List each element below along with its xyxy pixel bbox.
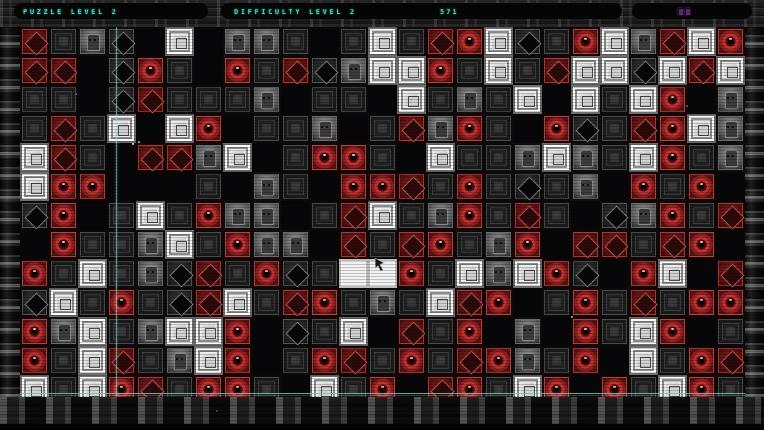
tile-dark-ornate-tile-r4c9[interactable]	[281, 143, 310, 172]
tile-silver-frame-tile-r1c20[interactable]	[600, 56, 629, 85]
tile-silver-frame-tile-r1c13[interactable]	[397, 56, 426, 85]
tile-dark-ornate-tile-r11c9[interactable]	[281, 346, 310, 375]
tile-red-eye-tile-r8c0[interactable]	[20, 259, 49, 288]
tile-dark-ornate-tile-r5c16[interactable]	[484, 172, 513, 201]
dust-speck	[138, 141, 140, 143]
tile-red-eye-tile-r5c1[interactable]	[49, 172, 78, 201]
tile-red-diamond-tile-r11c24[interactable]	[716, 346, 745, 375]
tile-dark-ornate-tile-r2c0[interactable]	[20, 85, 49, 114]
pointer-cursor	[374, 258, 386, 272]
tile-gray-face-tile-r3c10[interactable]	[310, 114, 339, 143]
dust-speck	[571, 316, 573, 318]
tile-red-diamond-tile-r7c11[interactable]	[339, 230, 368, 259]
tile-dark-ornate-tile-r7c21[interactable]	[629, 230, 658, 259]
tile-empty-black-r5c4	[136, 172, 165, 201]
puzzle-board	[20, 27, 745, 397]
tile-red-diamond-tile-r11c11[interactable]	[339, 346, 368, 375]
tile-dark-diamond-tile-r8c5[interactable]	[165, 259, 194, 288]
tile-dark-diamond-tile-r1c3[interactable]	[107, 56, 136, 85]
tile-dark-diamond-tile-r3c19[interactable]	[571, 114, 600, 143]
tile-silver-frame-tile-r0c5[interactable]	[165, 27, 194, 56]
tile-dark-ornate-tile-r3c0[interactable]	[20, 114, 49, 143]
tile-red-eye-tile-r10c7[interactable]	[223, 317, 252, 346]
tile-dark-ornate-tile-r10c24[interactable]	[716, 317, 745, 346]
tile-dark-ornate-tile-r2c16[interactable]	[484, 85, 513, 114]
tile-red-eye-tile-r1c7[interactable]	[223, 56, 252, 85]
tile-gray-face-tile-r5c19[interactable]	[571, 172, 600, 201]
tile-dark-ornate-tile-r10c10[interactable]	[310, 317, 339, 346]
tile-gray-face-tile-r7c9[interactable]	[281, 230, 310, 259]
tile-dark-ornate-tile-r5c6[interactable]	[194, 172, 223, 201]
tile-red-diamond-tile-r0c22[interactable]	[658, 27, 687, 56]
tile-red-diamond-tile-r9c15[interactable]	[455, 288, 484, 317]
tile-gray-face-tile-r6c14[interactable]	[426, 201, 455, 230]
tile-silver-frame-tile-r3c23[interactable]	[687, 114, 716, 143]
tile-dark-ornate-tile-r8c10[interactable]	[310, 259, 339, 288]
tile-dark-ornate-tile-r0c18[interactable]	[542, 27, 571, 56]
tile-red-eye-tile-r7c23[interactable]	[687, 230, 716, 259]
tile-empty-black-r6c19	[571, 201, 600, 230]
tile-silver-frame-tile-r2c17[interactable]	[513, 85, 542, 114]
tile-silver-frame-tile-r9c1[interactable]	[49, 288, 78, 317]
tile-empty-black-r2c12	[368, 85, 397, 114]
tile-silver-frame-tile-r3c5[interactable]	[165, 114, 194, 143]
tile-gray-face-tile-r5c8[interactable]	[252, 172, 281, 201]
dust-speck	[75, 93, 77, 95]
tile-dark-ornate-tile-r8c7[interactable]	[223, 259, 252, 288]
tile-dark-ornate-tile-r4c20[interactable]	[600, 143, 629, 172]
tile-red-diamond-tile-r5c13[interactable]	[397, 172, 426, 201]
tile-red-eye-tile-r7c14[interactable]	[426, 230, 455, 259]
tile-red-eye-tile-r4c22[interactable]	[658, 143, 687, 172]
tile-silver-frame-tile-r9c7[interactable]	[223, 288, 252, 317]
tile-dark-ornate-tile-r7c15[interactable]	[455, 230, 484, 259]
tile-silver-frame-tile-r5c0[interactable]	[20, 172, 49, 201]
tile-dark-ornate-tile-r2c5[interactable]	[165, 85, 194, 114]
tile-red-eye-tile-r9c19[interactable]	[571, 288, 600, 317]
tile-dark-ornate-tile-r3c8[interactable]	[252, 114, 281, 143]
purple-indicator-icon	[685, 8, 690, 15]
tile-gray-face-tile-r4c19[interactable]	[571, 143, 600, 172]
tile-dark-ornate-tile-r6c16[interactable]	[484, 201, 513, 230]
tile-gray-face-tile-r3c14[interactable]	[426, 114, 455, 143]
tile-red-diamond-tile-r1c9[interactable]	[281, 56, 310, 85]
tile-gray-face-tile-r2c15[interactable]	[455, 85, 484, 114]
tile-empty-black-r5c3	[107, 172, 136, 201]
tile-empty-black-r5c10	[310, 172, 339, 201]
tile-red-eye-tile-r6c6[interactable]	[194, 201, 223, 230]
tile-dark-ornate-tile-r5c18[interactable]	[542, 172, 571, 201]
tile-silver-frame-tile-r10c21[interactable]	[629, 317, 658, 346]
tile-dark-ornate-tile-r2c6[interactable]	[194, 85, 223, 114]
tile-empty-black-r7c18	[542, 230, 571, 259]
tile-red-eye-tile-r10c0[interactable]	[20, 317, 49, 346]
tile-empty-black-r1c6	[194, 56, 223, 85]
tile-gray-face-tile-r10c17[interactable]	[513, 317, 542, 346]
tile-silver-frame-tile-r8c15[interactable]	[455, 259, 484, 288]
tile-white-blank-tile-r8c11[interactable]	[339, 259, 368, 288]
tile-dark-ornate-tile-r4c2[interactable]	[78, 143, 107, 172]
tile-dark-ornate-tile-r10c3[interactable]	[107, 317, 136, 346]
tile-red-eye-tile-r11c13[interactable]	[397, 346, 426, 375]
tile-gray-face-tile-r7c4[interactable]	[136, 230, 165, 259]
tile-gray-face-tile-r4c6[interactable]	[194, 143, 223, 172]
vertical-guide-line	[116, 27, 117, 397]
tile-gray-face-tile-r10c4[interactable]	[136, 317, 165, 346]
tile-red-eye-tile-r8c13[interactable]	[397, 259, 426, 288]
tile-silver-frame-tile-r0c23[interactable]	[687, 27, 716, 56]
tile-dark-ornate-tile-r1c15[interactable]	[455, 56, 484, 85]
tile-empty-black-r4c8	[252, 143, 281, 172]
tile-gray-face-tile-r0c8[interactable]	[252, 27, 281, 56]
tile-red-diamond-tile-r4c1[interactable]	[49, 143, 78, 172]
tile-empty-black-r2c23	[687, 85, 716, 114]
tile-empty-black-r4c3	[107, 143, 136, 172]
tile-dark-diamond-tile-r6c20[interactable]	[600, 201, 629, 230]
game-screen: PUZZLE LEVEL 2 DIFFICULTY LEVEL 2 571	[0, 0, 764, 430]
tile-dark-ornate-tile-r8c1[interactable]	[49, 259, 78, 288]
tile-silver-frame-tile-r0c20[interactable]	[600, 27, 629, 56]
dust-speck	[686, 105, 688, 107]
tile-dark-ornate-tile-r8c14[interactable]	[426, 259, 455, 288]
tile-silver-frame-tile-r8c2[interactable]	[78, 259, 107, 288]
tile-red-diamond-tile-r7c13[interactable]	[397, 230, 426, 259]
tile-red-diamond-tile-r8c24[interactable]	[716, 259, 745, 288]
tile-dark-ornate-tile-r4c12[interactable]	[368, 143, 397, 172]
tile-silver-frame-tile-r4c7[interactable]	[223, 143, 252, 172]
tile-dark-ornate-tile-r11c22[interactable]	[658, 346, 687, 375]
tile-dark-ornate-tile-r2c20[interactable]	[600, 85, 629, 114]
tile-silver-frame-tile-r1c12[interactable]	[368, 56, 397, 85]
tile-dark-ornate-tile-r0c1[interactable]	[49, 27, 78, 56]
tile-gray-face-tile-r9c12[interactable]	[368, 288, 397, 317]
tile-silver-frame-tile-r2c21[interactable]	[629, 85, 658, 114]
tile-empty-black-r2c2	[78, 85, 107, 114]
tile-empty-black-r3c11	[339, 114, 368, 143]
tile-red-diamond-tile-r10c13[interactable]	[397, 317, 426, 346]
tile-dark-ornate-tile-r10c20[interactable]	[600, 317, 629, 346]
tile-red-eye-tile-r11c16[interactable]	[484, 346, 513, 375]
tile-silver-frame-tile-r11c6[interactable]	[194, 346, 223, 375]
tile-red-diamond-tile-r0c14[interactable]	[426, 27, 455, 56]
tile-red-diamond-tile-r2c4[interactable]	[136, 85, 165, 114]
tile-dark-ornate-tile-r6c18[interactable]	[542, 201, 571, 230]
tile-dark-diamond-tile-r0c17[interactable]	[513, 27, 542, 56]
tile-red-diamond-tile-r11c3[interactable]	[107, 346, 136, 375]
score-value: 571	[440, 8, 459, 16]
tile-red-diamond-tile-r9c6[interactable]	[194, 288, 223, 317]
tile-dark-ornate-tile-r3c2[interactable]	[78, 114, 107, 143]
tile-gray-face-tile-r3c24[interactable]	[716, 114, 745, 143]
tile-red-eye-tile-r0c24[interactable]	[716, 27, 745, 56]
tile-dark-ornate-tile-r5c14[interactable]	[426, 172, 455, 201]
tile-gray-face-tile-r6c21[interactable]	[629, 201, 658, 230]
tile-red-eye-tile-r6c15[interactable]	[455, 201, 484, 230]
tile-dark-diamond-tile-r2c3[interactable]	[107, 85, 136, 114]
tile-gray-face-tile-r11c17[interactable]	[513, 346, 542, 375]
tile-empty-black-r5c20	[600, 172, 629, 201]
tile-red-eye-tile-r11c10[interactable]	[310, 346, 339, 375]
tile-red-eye-tile-r11c0[interactable]	[20, 346, 49, 375]
tile-silver-frame-tile-r10c2[interactable]	[78, 317, 107, 346]
tile-red-eye-tile-r8c8[interactable]	[252, 259, 281, 288]
tile-gray-face-tile-r7c16[interactable]	[484, 230, 513, 259]
tile-silver-frame-tile-r11c2[interactable]	[78, 346, 107, 375]
tile-empty-black-r0c4	[136, 27, 165, 56]
tile-dark-ornate-tile-r4c16[interactable]	[484, 143, 513, 172]
tile-silver-frame-tile-r4c14[interactable]	[426, 143, 455, 172]
tile-empty-black-r6c2	[78, 201, 107, 230]
tile-red-eye-tile-r5c15[interactable]	[455, 172, 484, 201]
tile-dark-diamond-tile-r10c9[interactable]	[281, 317, 310, 346]
tile-red-eye-tile-r10c22[interactable]	[658, 317, 687, 346]
tile-gray-face-tile-r0c21[interactable]	[629, 27, 658, 56]
tile-red-diamond-tile-r6c24[interactable]	[716, 201, 745, 230]
tile-dark-ornate-tile-r9c20[interactable]	[600, 288, 629, 317]
tile-dark-ornate-tile-r9c22[interactable]	[658, 288, 687, 317]
tile-red-eye-tile-r7c7[interactable]	[223, 230, 252, 259]
tile-red-diamond-tile-r1c23[interactable]	[687, 56, 716, 85]
tile-red-diamond-tile-r7c22[interactable]	[658, 230, 687, 259]
tile-dark-diamond-tile-r1c10[interactable]	[310, 56, 339, 85]
tile-dark-ornate-tile-r6c10[interactable]	[310, 201, 339, 230]
tile-empty-black-r8c20	[600, 259, 629, 288]
tile-silver-frame-tile-r1c19[interactable]	[571, 56, 600, 85]
tile-red-diamond-tile-r7c19[interactable]	[571, 230, 600, 259]
tile-gray-face-tile-r2c8[interactable]	[252, 85, 281, 114]
tile-red-diamond-tile-r7c20[interactable]	[600, 230, 629, 259]
tile-dark-ornate-tile-r3c16[interactable]	[484, 114, 513, 143]
tile-dark-ornate-tile-r4c15[interactable]	[455, 143, 484, 172]
tile-gray-face-tile-r10c1[interactable]	[49, 317, 78, 346]
tile-red-eye-tile-r1c4[interactable]	[136, 56, 165, 85]
tile-red-eye-tile-r8c18[interactable]	[542, 259, 571, 288]
tile-dark-ornate-tile-r2c10[interactable]	[310, 85, 339, 114]
tile-red-eye-tile-r5c11[interactable]	[339, 172, 368, 201]
tile-dark-ornate-tile-r3c12[interactable]	[368, 114, 397, 143]
tile-red-eye-tile-r2c22[interactable]	[658, 85, 687, 114]
tile-empty-black-r7c10	[310, 230, 339, 259]
tile-silver-frame-tile-r4c0[interactable]	[20, 143, 49, 172]
tile-empty-black-r0c10	[310, 27, 339, 56]
tile-dark-ornate-tile-r2c14[interactable]	[426, 85, 455, 114]
tile-red-diamond-tile-r3c21[interactable]	[629, 114, 658, 143]
tile-silver-frame-tile-r10c5[interactable]	[165, 317, 194, 346]
tile-silver-frame-tile-r6c4[interactable]	[136, 201, 165, 230]
tile-gray-face-tile-r6c8[interactable]	[252, 201, 281, 230]
tile-red-diamond-tile-r6c11[interactable]	[339, 201, 368, 230]
tile-dark-diamond-tile-r9c5[interactable]	[165, 288, 194, 317]
tile-red-eye-tile-r11c19[interactable]	[571, 346, 600, 375]
tile-gray-face-tile-r11c5[interactable]	[165, 346, 194, 375]
tile-red-eye-tile-r7c1[interactable]	[49, 230, 78, 259]
tile-red-diamond-tile-r9c9[interactable]	[281, 288, 310, 317]
tile-gray-face-tile-r2c24[interactable]	[716, 85, 745, 114]
tile-silver-frame-tile-r10c11[interactable]	[339, 317, 368, 346]
tile-red-eye-tile-r1c14[interactable]	[426, 56, 455, 85]
tile-red-eye-tile-r10c15[interactable]	[455, 317, 484, 346]
tile-red-eye-tile-r5c21[interactable]	[629, 172, 658, 201]
tile-red-diamond-tile-r9c21[interactable]	[629, 288, 658, 317]
tile-silver-frame-tile-r1c24[interactable]	[716, 56, 745, 85]
tile-red-eye-tile-r11c23[interactable]	[687, 346, 716, 375]
tile-dark-ornate-tile-r9c18[interactable]	[542, 288, 571, 317]
tile-dark-ornate-tile-r9c11[interactable]	[339, 288, 368, 317]
tile-red-eye-tile-r0c15[interactable]	[455, 27, 484, 56]
tile-dark-diamond-tile-r1c21[interactable]	[629, 56, 658, 85]
tile-gray-face-tile-r4c24[interactable]	[716, 143, 745, 172]
tile-gray-face-tile-r6c7[interactable]	[223, 201, 252, 230]
purple-indicator-icon	[678, 8, 683, 15]
tile-dark-ornate-tile-r7c6[interactable]	[194, 230, 223, 259]
tile-dark-ornate-tile-r11c1[interactable]	[49, 346, 78, 375]
tile-red-diamond-tile-r4c5[interactable]	[165, 143, 194, 172]
tile-dark-ornate-tile-r6c13[interactable]	[397, 201, 426, 230]
tile-red-diamond-tile-r3c1[interactable]	[49, 114, 78, 143]
tile-red-diamond-tile-r1c18[interactable]	[542, 56, 571, 85]
tile-red-eye-tile-r3c22[interactable]	[658, 114, 687, 143]
tile-dark-ornate-tile-r11c4[interactable]	[136, 346, 165, 375]
tile-dark-diamond-tile-r8c19[interactable]	[571, 259, 600, 288]
tile-gray-face-tile-r0c2[interactable]	[78, 27, 107, 56]
tile-dark-ornate-tile-r7c12[interactable]	[368, 230, 397, 259]
tile-empty-black-r8c23	[687, 259, 716, 288]
tile-dark-ornate-tile-r1c8[interactable]	[252, 56, 281, 85]
tile-silver-frame-tile-r8c17[interactable]	[513, 259, 542, 288]
dust-speck	[410, 99, 412, 101]
tile-dark-ornate-tile-r4c23[interactable]	[687, 143, 716, 172]
tile-empty-black-r7c24	[716, 230, 745, 259]
puzzle-level-label: PUZZLE LEVEL 2	[23, 8, 118, 16]
tile-dark-ornate-tile-r0c11[interactable]	[339, 27, 368, 56]
tile-dark-diamond-tile-r6c0[interactable]	[20, 201, 49, 230]
tile-silver-frame-tile-r9c14[interactable]	[426, 288, 455, 317]
tile-dark-ornate-tile-r7c2[interactable]	[78, 230, 107, 259]
tile-dark-ornate-tile-r6c23[interactable]	[687, 201, 716, 230]
tile-silver-frame-tile-r1c16[interactable]	[484, 56, 513, 85]
tile-red-eye-tile-r8c21[interactable]	[629, 259, 658, 288]
tile-dark-ornate-tile-r2c1[interactable]	[49, 85, 78, 114]
tile-dark-ornate-tile-r9c2[interactable]	[78, 288, 107, 317]
tile-dark-ornate-tile-r5c22[interactable]	[658, 172, 687, 201]
tile-dark-ornate-tile-r9c4[interactable]	[136, 288, 165, 317]
tile-gray-face-tile-r8c4[interactable]	[136, 259, 165, 288]
tile-red-eye-tile-r9c24[interactable]	[716, 288, 745, 317]
tile-dark-ornate-tile-r0c13[interactable]	[397, 27, 426, 56]
tile-silver-frame-tile-r4c18[interactable]	[542, 143, 571, 172]
tile-dark-ornate-tile-r6c3[interactable]	[107, 201, 136, 230]
tile-red-eye-tile-r0c19[interactable]	[571, 27, 600, 56]
tile-silver-frame-tile-r4c21[interactable]	[629, 143, 658, 172]
tile-red-diamond-tile-r6c17[interactable]	[513, 201, 542, 230]
tile-dark-ornate-tile-r11c18[interactable]	[542, 346, 571, 375]
tile-empty-black-r3c4	[136, 114, 165, 143]
tile-red-eye-tile-r5c2[interactable]	[78, 172, 107, 201]
tile-dark-ornate-tile-r11c12[interactable]	[368, 346, 397, 375]
tile-dark-ornate-tile-r3c20[interactable]	[600, 114, 629, 143]
tile-silver-frame-tile-r2c19[interactable]	[571, 85, 600, 114]
tile-red-eye-tile-r6c22[interactable]	[658, 201, 687, 230]
difficulty-level-label: DIFFICULTY LEVEL 2	[234, 8, 357, 16]
tile-red-eye-tile-r5c12[interactable]	[368, 172, 397, 201]
tile-red-eye-tile-r10c19[interactable]	[571, 317, 600, 346]
tile-silver-frame-tile-r0c12[interactable]	[368, 27, 397, 56]
tile-dark-ornate-tile-r9c13[interactable]	[397, 288, 426, 317]
tile-red-eye-tile-r7c17[interactable]	[513, 230, 542, 259]
tile-red-eye-tile-r9c16[interactable]	[484, 288, 513, 317]
tile-silver-frame-tile-r11c21[interactable]	[629, 346, 658, 375]
dust-speck	[216, 410, 218, 412]
tile-red-eye-tile-r3c6[interactable]	[194, 114, 223, 143]
tile-red-eye-tile-r3c15[interactable]	[455, 114, 484, 143]
tile-dark-diamond-tile-r0c3[interactable]	[107, 27, 136, 56]
tile-silver-frame-tile-r10c6[interactable]	[194, 317, 223, 346]
tile-dark-ornate-tile-r6c5[interactable]	[165, 201, 194, 230]
tile-empty-black-r9c17	[513, 288, 542, 317]
tile-silver-frame-tile-r6c12[interactable]	[368, 201, 397, 230]
tile-red-eye-tile-r4c10[interactable]	[310, 143, 339, 172]
tile-silver-frame-tile-r3c3[interactable]	[107, 114, 136, 143]
tile-gray-face-tile-r4c17[interactable]	[513, 143, 542, 172]
tile-silver-frame-tile-r8c22[interactable]	[658, 259, 687, 288]
tile-empty-black-r10c18	[542, 317, 571, 346]
tile-red-diamond-tile-r1c0[interactable]	[20, 56, 49, 85]
tile-dark-ornate-tile-r8c3[interactable]	[107, 259, 136, 288]
puzzle-level-pill: PUZZLE LEVEL 2	[14, 3, 208, 19]
tile-gray-face-tile-r0c7[interactable]	[223, 27, 252, 56]
tile-silver-frame-tile-r1c22[interactable]	[658, 56, 687, 85]
tile-dark-ornate-tile-r3c9[interactable]	[281, 114, 310, 143]
tile-red-eye-tile-r11c7[interactable]	[223, 346, 252, 375]
tile-dark-ornate-tile-r0c9[interactable]	[281, 27, 310, 56]
tile-red-diamond-tile-r0c0[interactable]	[20, 27, 49, 56]
tile-red-eye-tile-r4c11[interactable]	[339, 143, 368, 172]
tile-empty-black-r10c8	[252, 317, 281, 346]
tile-dark-ornate-tile-r11c14[interactable]	[426, 346, 455, 375]
tile-dark-ornate-tile-r10c14[interactable]	[426, 317, 455, 346]
tile-dark-diamond-tile-r5c17[interactable]	[513, 172, 542, 201]
tile-dark-diamond-tile-r8c9[interactable]	[281, 259, 310, 288]
tile-dark-ornate-tile-r7c3[interactable]	[107, 230, 136, 259]
status-pill	[632, 3, 752, 19]
tile-red-eye-tile-r5c23[interactable]	[687, 172, 716, 201]
tile-dark-ornate-tile-r5c9[interactable]	[281, 172, 310, 201]
tile-dark-ornate-tile-r1c17[interactable]	[513, 56, 542, 85]
tile-red-diamond-tile-r1c1[interactable]	[49, 56, 78, 85]
tile-red-eye-tile-r9c23[interactable]	[687, 288, 716, 317]
tile-dark-ornate-tile-r1c5[interactable]	[165, 56, 194, 85]
tile-red-eye-tile-r9c3[interactable]	[107, 288, 136, 317]
tile-red-eye-tile-r6c1[interactable]	[49, 201, 78, 230]
tile-red-diamond-tile-r3c13[interactable]	[397, 114, 426, 143]
tile-red-eye-tile-r3c18[interactable]	[542, 114, 571, 143]
tile-dark-diamond-tile-r9c0[interactable]	[20, 288, 49, 317]
tile-dark-ornate-tile-r2c11[interactable]	[339, 85, 368, 114]
tile-empty-black-r6c9	[281, 201, 310, 230]
tile-empty-black-r5c5	[165, 172, 194, 201]
tile-gray-face-tile-r8c16[interactable]	[484, 259, 513, 288]
tile-red-diamond-tile-r11c15[interactable]	[455, 346, 484, 375]
tile-silver-frame-tile-r7c5[interactable]	[165, 230, 194, 259]
tile-gray-face-tile-r7c8[interactable]	[252, 230, 281, 259]
tile-red-diamond-tile-r4c4[interactable]	[136, 143, 165, 172]
tile-gray-face-tile-r1c11[interactable]	[339, 56, 368, 85]
tile-silver-frame-tile-r0c16[interactable]	[484, 27, 513, 56]
tile-dark-ornate-tile-r9c8[interactable]	[252, 288, 281, 317]
tile-dark-ornate-tile-r2c7[interactable]	[223, 85, 252, 114]
tile-red-diamond-tile-r8c6[interactable]	[194, 259, 223, 288]
tile-red-eye-tile-r9c10[interactable]	[310, 288, 339, 317]
